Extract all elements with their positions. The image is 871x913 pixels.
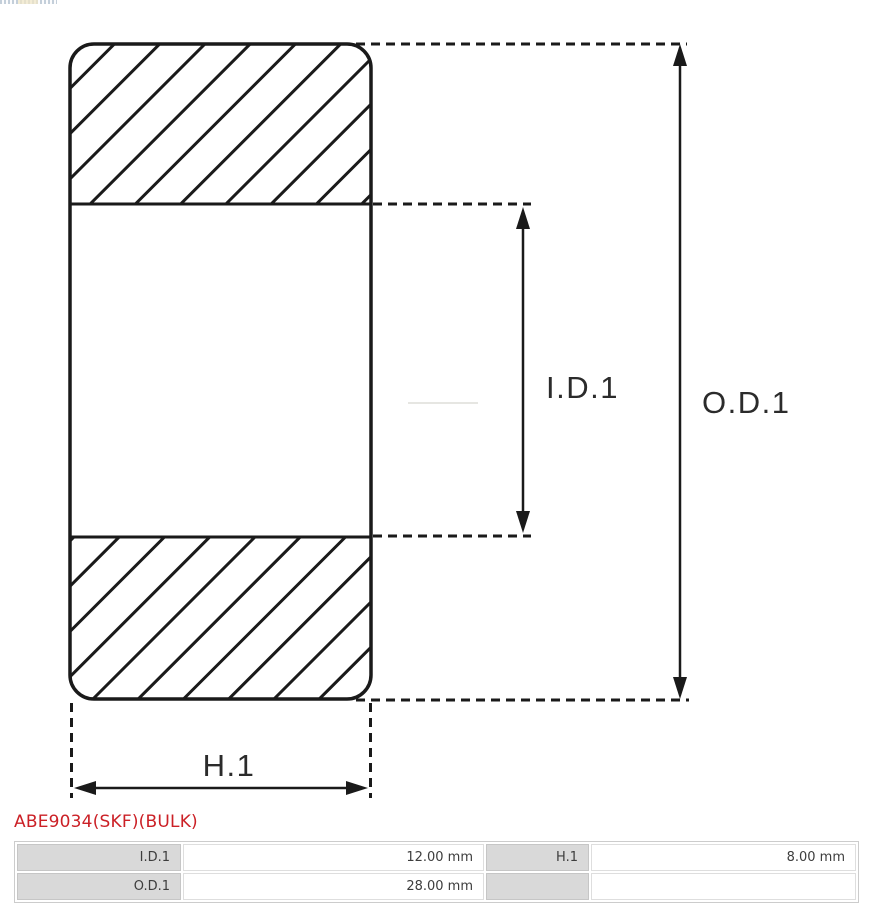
spec-label-empty — [486, 873, 589, 900]
spec-row-2: O.D.1 28.00 mm — [17, 873, 856, 900]
hatched-section-top — [70, 44, 371, 204]
product-dimension-page: I.D.1 O.D.1 H.1 ABE9034(SKF)(BULK) I.D.1 — [0, 0, 871, 913]
spec-value-id1: 12.00 mm — [183, 844, 484, 871]
spec-label-id1: I.D.1 — [17, 844, 181, 871]
spec-label-od1: O.D.1 — [17, 873, 181, 900]
outer-diameter-label: O.D.1 — [702, 385, 790, 420]
hatched-section-bottom — [70, 537, 371, 700]
spec-value-od1: 28.00 mm — [183, 873, 484, 900]
inner-diameter-arrow — [516, 207, 530, 533]
outer-diameter-arrow — [673, 44, 687, 699]
height-label: H.1 — [203, 748, 256, 783]
bearing-cross-section-diagram: I.D.1 O.D.1 H.1 — [0, 0, 871, 810]
spec-value-h1: 8.00 mm — [591, 844, 856, 871]
product-title-link[interactable]: ABE9034(SKF)(BULK) — [14, 812, 198, 832]
spec-label-h1: H.1 — [486, 844, 589, 871]
spec-value-empty — [591, 873, 856, 900]
spec-table: I.D.1 12.00 mm H.1 8.00 mm O.D.1 28.00 m… — [14, 841, 859, 903]
spec-row-1: I.D.1 12.00 mm H.1 8.00 mm — [17, 844, 856, 871]
height-arrow — [74, 781, 368, 795]
inner-diameter-label: I.D.1 — [546, 370, 619, 405]
